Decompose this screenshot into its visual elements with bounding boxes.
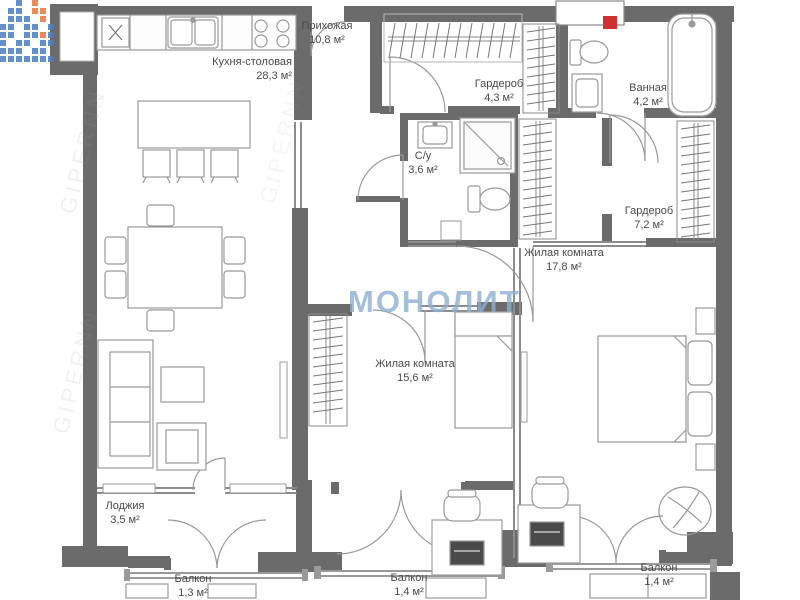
bar-stools	[143, 150, 238, 183]
room-label-loggia: Лоджия 3,5 м²	[94, 499, 156, 527]
nightstand	[696, 308, 715, 334]
room-label-balcony-left: Балкон 1,3 м²	[162, 572, 224, 600]
room-label-wardrobe-small: Гардероб 4,3 м²	[462, 77, 536, 105]
door-arc-balcony-mid-a	[337, 490, 401, 554]
radiator	[280, 362, 287, 438]
door-leaf	[521, 352, 527, 422]
washbasin-icon	[572, 74, 602, 112]
window	[230, 484, 286, 493]
pillow	[688, 341, 712, 385]
room-label-balcony-right: Балкон 1,4 м²	[628, 561, 690, 589]
toilet-icon	[468, 186, 510, 212]
double-bed	[598, 308, 715, 470]
kitchen-island	[138, 101, 250, 148]
armchair	[157, 423, 206, 470]
pillow	[688, 392, 712, 436]
door-arc-wardrobe-large	[610, 115, 658, 163]
desk-living-2	[432, 520, 502, 575]
room-label-hallway: Прихожая 10,8 м²	[292, 19, 362, 47]
floor-plan: GIPERNN GIPERNN GIPERNN	[0, 0, 800, 600]
sofa	[98, 340, 153, 468]
monolit-logo-icon	[0, 0, 60, 66]
room-label-wc: С/у 3,6 м²	[400, 149, 446, 177]
brand-watermark: МОНОЛИТ	[348, 284, 521, 320]
door-posts	[164, 482, 666, 570]
room-label-balcony-middle: Балкон 1,4 м²	[378, 571, 440, 599]
room-label-living-2: Жилая комната 15,6 м²	[366, 357, 464, 385]
coffee-table	[161, 367, 204, 402]
window	[103, 484, 155, 493]
room-label-living-1: Жилая комната 17,8 м²	[516, 246, 612, 274]
wc-niche	[441, 221, 461, 240]
washbasin-icon	[418, 122, 452, 148]
door-arc-balcony-right-b	[616, 516, 663, 563]
office-chair	[444, 490, 480, 521]
red-riser-marker	[603, 16, 617, 29]
toilet-icon	[570, 40, 608, 65]
desk-living-1	[518, 505, 580, 563]
room-label-bathroom: Ванная 4,2 м²	[618, 81, 678, 109]
kitchen-fixtures	[97, 15, 296, 470]
sink-icon	[168, 17, 218, 48]
room-label-kitchen: Кухня-столовая 28,3 м²	[186, 55, 292, 83]
room-label-wardrobe-large: Гардероб 7,2 м²	[612, 204, 686, 232]
window	[60, 12, 94, 61]
dining-table	[128, 227, 222, 308]
nightstand	[696, 444, 715, 470]
shower-icon	[460, 118, 515, 173]
plant-icon	[659, 487, 711, 535]
office-chair	[532, 477, 568, 508]
computer-icon	[530, 522, 564, 546]
door-arc-wc	[358, 155, 403, 200]
door-arc-wardrobe-small	[390, 57, 445, 112]
computer-icon	[450, 541, 484, 565]
bedroom-furniture	[432, 308, 715, 575]
door-arc-balcony-left-a	[168, 520, 217, 568]
